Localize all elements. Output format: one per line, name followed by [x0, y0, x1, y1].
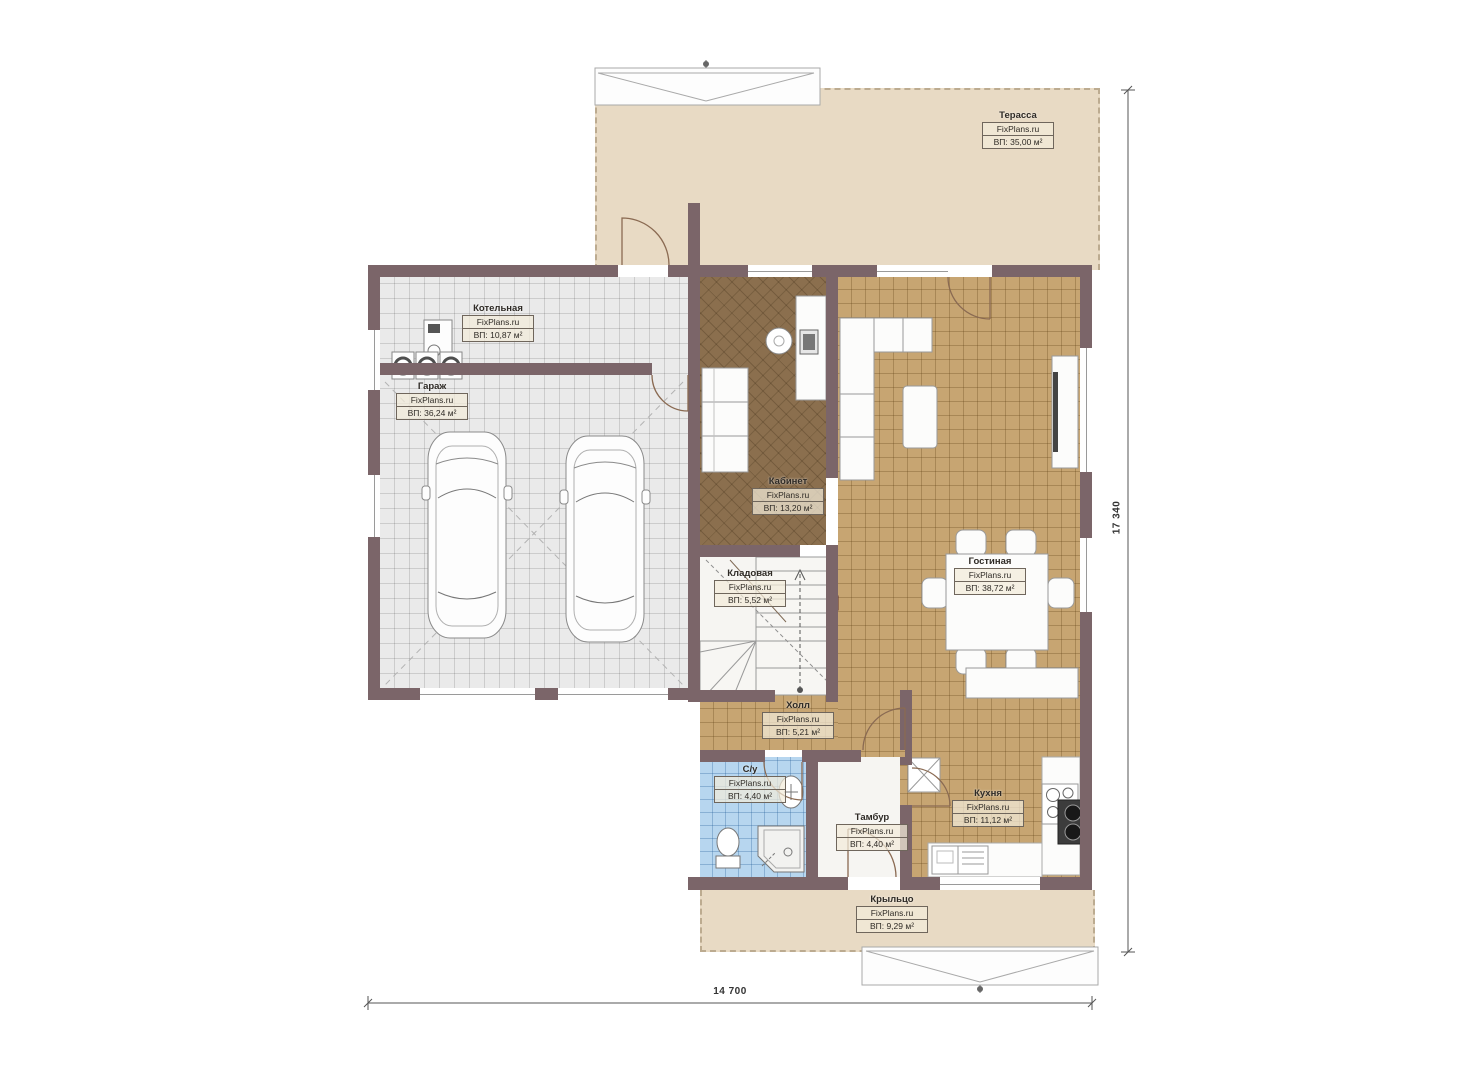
room-label-porch: Крыльцо FixPlans.ru ВП: 9,29 м²: [856, 894, 928, 933]
wall-vestibule-right-a: [900, 757, 912, 765]
wall-boiler: [380, 363, 652, 375]
wall-office-right-a: [826, 277, 838, 478]
room-label-hall: Холл FixPlans.ru ВП: 5,21 м²: [762, 700, 834, 739]
room-brand: FixPlans.ru: [856, 906, 928, 920]
room-garage-floor: [380, 277, 688, 688]
garage-door-2: [558, 688, 668, 700]
entrance-door-opening: [848, 877, 900, 890]
room-label-living: Гостиная FixPlans.ru ВП: 38,72 м²: [954, 556, 1026, 595]
room-brand: FixPlans.ru: [462, 315, 534, 329]
room-brand: FixPlans.ru: [714, 580, 786, 594]
room-area: ВП: 5,21 м²: [762, 726, 834, 739]
room-label-boiler: Котельная FixPlans.ru ВП: 10,87 м²: [462, 303, 534, 342]
living-window-top: [877, 265, 948, 277]
room-brand: FixPlans.ru: [396, 393, 468, 407]
room-name: Котельная: [473, 303, 523, 314]
room-area: ВП: 13,20 м²: [752, 502, 824, 515]
wall-hall-a: [700, 750, 765, 762]
room-area: ВП: 4,40 м²: [836, 838, 908, 851]
terrace-door-opening: [618, 265, 668, 277]
floor-plan-canvas: Терасса FixPlans.ru ВП: 35,00 м² Котельн…: [0, 0, 1474, 1080]
room-name: Кабинет: [769, 476, 807, 487]
room-name: Кладовая: [727, 568, 773, 579]
room-name: Гостиная: [969, 556, 1012, 567]
room-name: Кухня: [974, 788, 1002, 799]
room-name: Тамбур: [855, 812, 889, 823]
room-label-garage: Гараж FixPlans.ru ВП: 36,24 м²: [396, 381, 468, 420]
room-label-kitchen: Кухня FixPlans.ru ВП: 11,12 м²: [952, 788, 1024, 827]
wall-garage-right: [688, 203, 700, 700]
living-window-right-2: [1080, 538, 1092, 612]
garage-window-2: [368, 475, 380, 537]
room-name: С/у: [743, 764, 758, 775]
room-area: ВП: 11,12 м²: [952, 814, 1024, 827]
room-area: ВП: 35,00 м²: [982, 136, 1054, 149]
room-name: Гараж: [418, 381, 446, 392]
wall-bath-right: [806, 757, 818, 877]
dimension-height-label: 17 340: [1111, 501, 1122, 535]
room-label-storage: Кладовая FixPlans.ru ВП: 5,52 м²: [714, 568, 786, 607]
room-brand: FixPlans.ru: [762, 712, 834, 726]
room-area: ВП: 9,29 м²: [856, 920, 928, 933]
wall-hall-kitchen: [900, 690, 912, 750]
room-label-vestibule: Тамбур FixPlans.ru ВП: 4,40 м²: [836, 812, 908, 851]
office-window: [748, 265, 812, 277]
room-area: ВП: 10,87 м²: [462, 329, 534, 342]
room-brand: FixPlans.ru: [714, 776, 786, 790]
room-area: ВП: 36,24 м²: [396, 407, 468, 420]
room-brand: FixPlans.ru: [982, 122, 1054, 136]
room-label-terrace: Терасса FixPlans.ru ВП: 35,00 м²: [982, 110, 1054, 149]
wall-office-right-b: [826, 545, 838, 702]
room-area: ВП: 5,52 м²: [714, 594, 786, 607]
room-name: Терасса: [999, 110, 1037, 121]
room-label-wc: С/у FixPlans.ru ВП: 4,40 м²: [714, 764, 786, 803]
room-brand: FixPlans.ru: [952, 800, 1024, 814]
room-brand: FixPlans.ru: [752, 488, 824, 502]
room-brand: FixPlans.ru: [954, 568, 1026, 582]
room-name: Крыльцо: [870, 894, 913, 905]
room-label-office: Кабинет FixPlans.ru ВП: 13,20 м²: [752, 476, 824, 515]
room-area: ВП: 38,72 м²: [954, 582, 1026, 595]
room-brand: FixPlans.ru: [836, 824, 908, 838]
kitchen-window: [940, 877, 1040, 890]
living-door-opening: [948, 265, 992, 277]
wall-office-storage: [700, 545, 800, 557]
garage-window-1: [368, 330, 380, 390]
room-name: Холл: [786, 700, 810, 711]
garage-door-1: [420, 688, 535, 700]
room-area: ВП: 4,40 м²: [714, 790, 786, 803]
living-window-right-1: [1080, 348, 1092, 472]
dimension-width-label: 14 700: [368, 986, 1092, 997]
